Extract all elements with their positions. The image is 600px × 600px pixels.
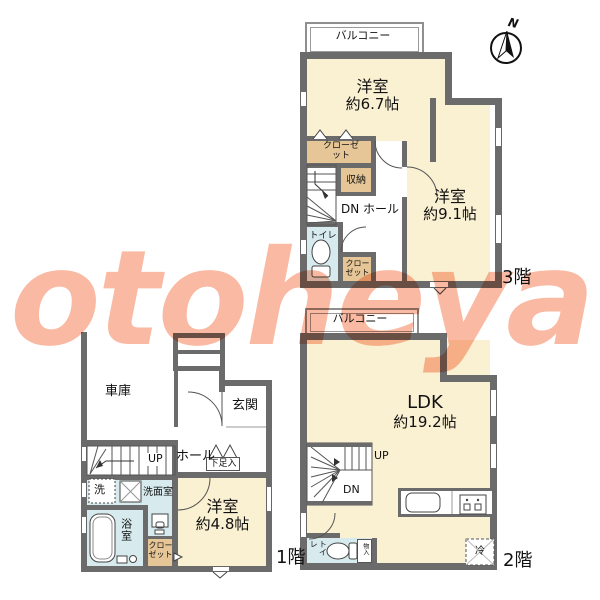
floor1-entrance-label: 玄関 [232,399,258,414]
floor3-hall-label: DN ホール [341,203,405,217]
floor1-closet-label: クローゼット [148,541,173,559]
floor2-dn-label: DN [343,484,360,497]
floor2-storage-strip-label: 物入 [361,543,368,561]
floor2-name: 2階 [503,551,541,572]
floor1-washroom-label: 洗面室 [143,487,173,499]
floor1-room-label: 洋室約4.8帖 [195,498,250,534]
floor1-garage-label: 車庫 [105,385,131,400]
floor2-balcony-label: バルコニー [315,313,405,326]
floor3-storage-label: 収納 [342,175,370,187]
floor3-closet-top-label: クローゼット [323,142,359,162]
floor1-washer-label: 洗 [94,484,105,497]
floor3-room2-label: 洋室約9.1帖 [414,188,486,224]
floor1-name: 1階 [276,548,314,569]
floor3-balcony-label: バルコニー [318,30,408,43]
floor2-fridge-label: 冷 [475,546,485,558]
floor3-room1-label: 洋室約6.7帖 [330,78,415,114]
floor1-bathroom-label: 浴室 [119,518,132,552]
floor3-name: 3階 [502,268,540,289]
floor3-closet-bottom-label: クローゼット [345,259,370,277]
floor1-hall-label: ホール [176,450,215,465]
floor1-up-label: UP [147,453,164,466]
floorplan-page: バルコニー [0,0,600,600]
floor3-toilet-label: トイレ [309,231,337,241]
floor2-up-label: UP [374,450,389,463]
floor2-fixtures [295,303,545,583]
floor2-ldk-label: LDK約19.2帖 [385,393,465,431]
